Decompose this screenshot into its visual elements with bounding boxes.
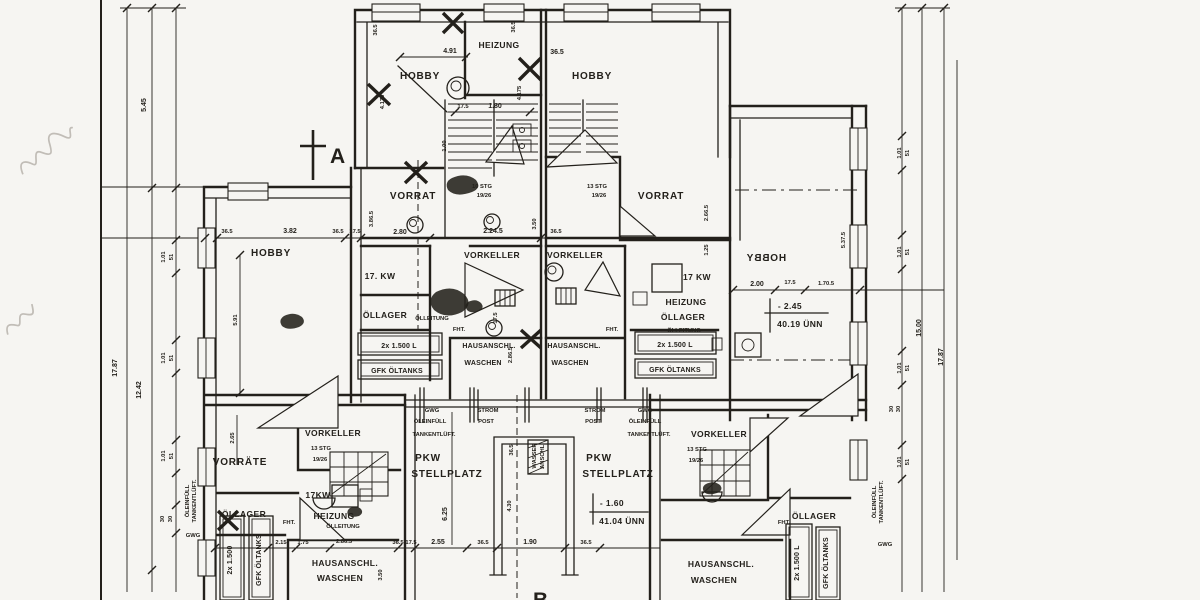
svg-text:2.80: 2.80 [393,229,407,236]
svg-text:36.5: 36.5 [221,229,233,235]
svg-text:36.5: 36.5 [550,49,564,56]
label-strom-left: STROM [478,408,499,414]
stair-grid-bottom-right [700,450,750,502]
label-oeleinfuell-margin-left: ÖLEINFÜLL [184,484,191,517]
svg-text:36.5: 36.5 [509,444,515,456]
svg-text:36.5: 36.5 [580,540,592,546]
svg-text:3.82: 3.82 [283,228,297,235]
svg-text:30: 30 [160,516,166,522]
label-tanks-bottom-left: 2x 1.500 [227,546,234,575]
label-tanks-bottom-right: 2x 1.500 L [794,545,801,581]
label-post-left: POST [478,419,494,425]
svg-text:36.5: 36.5 [332,229,344,235]
label-gwg-margin-left: GWG [186,533,201,539]
room-heizung-top: HEIZUNG [478,40,519,50]
svg-text:1.25: 1.25 [704,244,710,256]
svg-text:51: 51 [169,452,175,459]
svg-text:36.5: 36.5 [477,540,489,546]
label-heizung-mid-right: HEIZUNG [665,297,706,307]
svg-text:36.5: 36.5 [511,21,517,33]
dim-total-left: 17.87 [112,359,119,377]
svg-text:4.91: 4.91 [443,48,457,55]
svg-text:6.25: 6.25 [442,507,449,521]
window-icon [198,540,215,576]
label-oelleitung-mid-right: ÖLLEITUNG [667,327,701,334]
label-gwg-margin-right: GWG [878,542,893,548]
window-icon [228,183,268,200]
stair-label: 13 STG [311,446,331,452]
label-wasser: WASSER [532,443,538,469]
room-hobby-left: HOBBY [251,248,291,259]
window-icon [850,440,867,480]
scanned-floor-plan-page: 17.87 12.42 5.45 1.01 51 1.01 51 1.01 51… [0,0,1200,600]
svg-text:1.70.5: 1.70.5 [818,281,835,287]
label-fht: FHT. [606,327,619,333]
room-hobby-top-right: HOBBY [572,71,612,82]
stair-riser-label: 19/26 [592,193,607,199]
room-pkw-left: PKW [415,453,441,464]
svg-text:30: 30 [896,406,902,412]
window-icon [850,322,867,365]
window-icon [850,225,867,268]
svg-text:1.01: 1.01 [161,251,167,263]
room-hobby-right-mirrored: HOBBY [746,253,786,264]
label-gfk-mid-right: GFK ÖLTANKS [649,365,701,374]
svg-text:36.5: 36.5 [392,540,404,546]
svg-text:2.86.5: 2.86.5 [508,346,514,363]
stair-label: 13 STG [687,447,707,453]
label-gwg-right: GWG [638,408,653,414]
label-tankentlueft-left: TANKENTLÜFT. [412,431,455,438]
room-vorkeller-mid-right: VORKELLER [547,250,603,260]
svg-text:4.30: 4.30 [507,500,513,511]
svg-text:1.01: 1.01 [897,456,903,468]
label-gfk-bottom-left: GFK ÖLTANKS [254,534,263,586]
svg-text:1.90: 1.90 [523,539,537,546]
svg-text:51: 51 [905,364,911,371]
svg-text:2.24.5: 2.24.5 [483,228,503,235]
window-icon [372,4,420,21]
stair-riser-label: 19/26 [689,458,704,464]
svg-text:17.5: 17.5 [493,312,499,324]
svg-text:17.5: 17.5 [349,229,361,235]
room-hobby-top-left: HOBBY [400,71,440,82]
window-icon [652,4,700,21]
room-oellager-bottom-right: ÖLLAGER [792,511,836,521]
label-oelleitung-mid-left: ÖLLEITUNG [415,315,449,322]
svg-text:30: 30 [889,406,895,412]
label-gwg-left: GWG [425,408,440,414]
level-pkw-value: - 1.60 [600,498,624,508]
window-icon [564,4,608,21]
svg-text:5.37.5: 5.37.5 [841,231,847,248]
room-vorraete: VORRÄTE [213,455,268,468]
svg-text:3.50: 3.50 [378,569,384,580]
room-vorrat-left: VORRAT [390,191,436,202]
label-tanks-mid-right: 2x 1.500 L [657,342,693,349]
room-waschen-bottom-left: WASCHEN [317,573,363,583]
room-hausanschl-bottom-right: HAUSANSCHL. [688,559,754,569]
paper-background [0,0,1200,600]
room-oellager-bottom-left: ÖLLAGER [222,509,266,519]
room-vorkeller-bottom-left: VORKELLER [305,428,361,438]
label-tankentlueft-margin-left: TANKENTLÜFT. [191,479,198,522]
svg-text:4.175: 4.175 [517,85,523,100]
svg-text:1.75: 1.75 [297,540,309,546]
svg-text:51: 51 [905,149,911,156]
svg-text:17.5: 17.5 [405,540,417,546]
svg-text:2.66.5: 2.66.5 [704,204,710,221]
label-fht: FHT. [778,520,791,526]
svg-text:17.5: 17.5 [457,104,469,110]
label-17kw-mid-left: 17. KW [365,271,396,281]
label-tankentlueft-right: TANKENTLÜFT. [627,431,670,438]
svg-text:1.01: 1.01 [897,246,903,258]
label-fht: FHT. [453,327,466,333]
dim-left: 5.45 [141,98,148,112]
stair-riser-label: 19/26 [313,457,328,463]
svg-text:36.5: 36.5 [373,24,379,36]
label-17kw-bottom-left: 17KW [305,490,331,500]
room-waschen-mid-right: WASCHEN [551,360,588,367]
svg-text:1.80: 1.80 [488,103,502,110]
label-wasser-anschl: ANSCHL. [540,443,546,469]
label-fht: FHT. [283,520,296,526]
window-icon [198,228,215,268]
svg-text:51: 51 [169,253,175,260]
svg-text:2.86.5: 2.86.5 [336,539,353,545]
room-stellplatz-right: STELLPLATZ [582,469,653,480]
svg-text:2.65: 2.65 [230,432,236,444]
room-pkw-right: PKW [586,453,612,464]
label-oelleitung-bottom-left: ÖLLEITUNG [326,523,360,530]
section-marker-b: B [533,589,548,600]
dim-total-right: 17.87 [938,348,945,366]
svg-text:5.91: 5.91 [233,314,239,326]
room-vorkeller-bottom-right: VORKELLER [691,429,747,439]
svg-text:4.175: 4.175 [380,94,386,109]
room-waschen-mid-left: WASCHEN [464,360,501,367]
label-oeleinfuell-right: ÖLEINFÜLL [629,418,662,425]
room-oellager-mid-left: ÖLLAGER [363,310,407,320]
svg-text:1.01: 1.01 [897,362,903,374]
svg-text:17.5: 17.5 [784,280,796,286]
svg-text:51: 51 [905,458,911,465]
window-icon [850,128,867,170]
svg-text:51: 51 [905,248,911,255]
label-tankentlueft-margin-right: TANKENTLÜFT. [878,480,885,523]
stair-label: 13 STG [587,184,607,190]
room-stellplatz-left: STELLPLATZ [411,469,482,480]
svg-text:1.00: 1.00 [442,140,448,151]
level-hobby-value: - 2.45 [778,301,802,311]
label-17kw-mid-right: 17 KW [683,272,712,282]
level-hobby-datum: 40.19 ÜNN [777,319,823,329]
room-vorrat-right: VORRAT [638,191,684,202]
window-icon [484,4,524,21]
room-vorkeller-mid-left: VORKELLER [464,250,520,260]
label-post-right: POST [585,419,601,425]
svg-text:2.15: 2.15 [275,540,287,546]
floor-plan-drawing: 17.87 12.42 5.45 1.01 51 1.01 51 1.01 51… [0,0,1200,600]
svg-text:3.86.5: 3.86.5 [369,210,375,227]
room-hausanschl-mid-right: HAUSANSCHL. [547,343,600,350]
stair-riser-label: 19/26 [477,193,492,199]
room-waschen-bottom-right: WASCHEN [691,575,737,585]
label-oeleinfuell-margin-right: ÖLEINFÜLL [871,485,878,518]
svg-text:30: 30 [168,516,174,522]
svg-text:2.00: 2.00 [750,281,764,288]
svg-text:2.55: 2.55 [431,539,445,546]
svg-text:15.00: 15.00 [916,319,923,337]
svg-text:36.5: 36.5 [550,229,562,235]
svg-text:1.01: 1.01 [897,147,903,159]
svg-text:1.01: 1.01 [161,450,167,462]
label-strom-right: STROM [585,408,606,414]
label-oeleinfuell-left: ÖLEINFÜLL [414,418,447,425]
room-oellager-mid-right: ÖLLAGER [661,312,705,322]
label-gfk-mid-left: GFK ÖLTANKS [371,366,423,375]
svg-text:51: 51 [169,354,175,361]
room-hausanschl-bottom-left: HAUSANSCHL. [312,558,378,568]
section-marker-a: A [330,145,345,168]
svg-text:1.01: 1.01 [161,352,167,364]
level-pkw-datum: 41.04 ÜNN [599,516,645,526]
svg-text:3.50: 3.50 [532,218,538,229]
label-tanks-mid-left: 2x 1.500 L [381,343,417,350]
window-icon [198,338,215,378]
dim-left: 12.42 [136,381,143,399]
label-gfk-bottom-right: GFK ÖLTANKS [821,537,830,589]
